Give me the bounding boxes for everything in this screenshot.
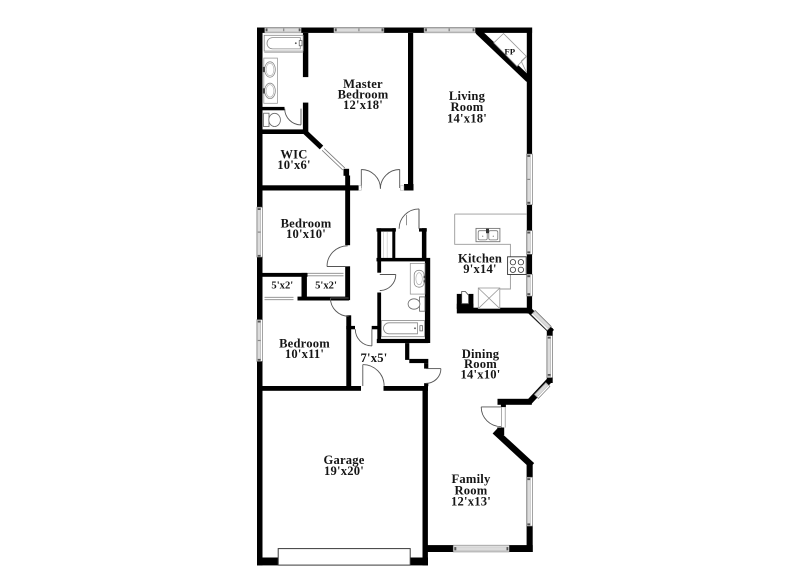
svg-text:9'x14': 9'x14' <box>463 262 496 276</box>
svg-text:7'x5': 7'x5' <box>361 351 388 365</box>
svg-text:12'x13': 12'x13' <box>451 494 491 508</box>
svg-text:10'x10': 10'x10' <box>286 227 326 241</box>
svg-text:14'x18': 14'x18' <box>447 111 487 125</box>
svg-text:10'x6': 10'x6' <box>277 158 310 172</box>
svg-text:19'x20': 19'x20' <box>324 464 364 478</box>
svg-text:5'x2': 5'x2' <box>271 280 293 291</box>
svg-text:10'x11': 10'x11' <box>285 347 324 361</box>
svg-text:FP: FP <box>504 47 515 57</box>
svg-text:14'x10': 14'x10' <box>461 368 501 382</box>
svg-text:12'x18': 12'x18' <box>343 98 383 112</box>
svg-text:5'x2': 5'x2' <box>315 280 337 291</box>
